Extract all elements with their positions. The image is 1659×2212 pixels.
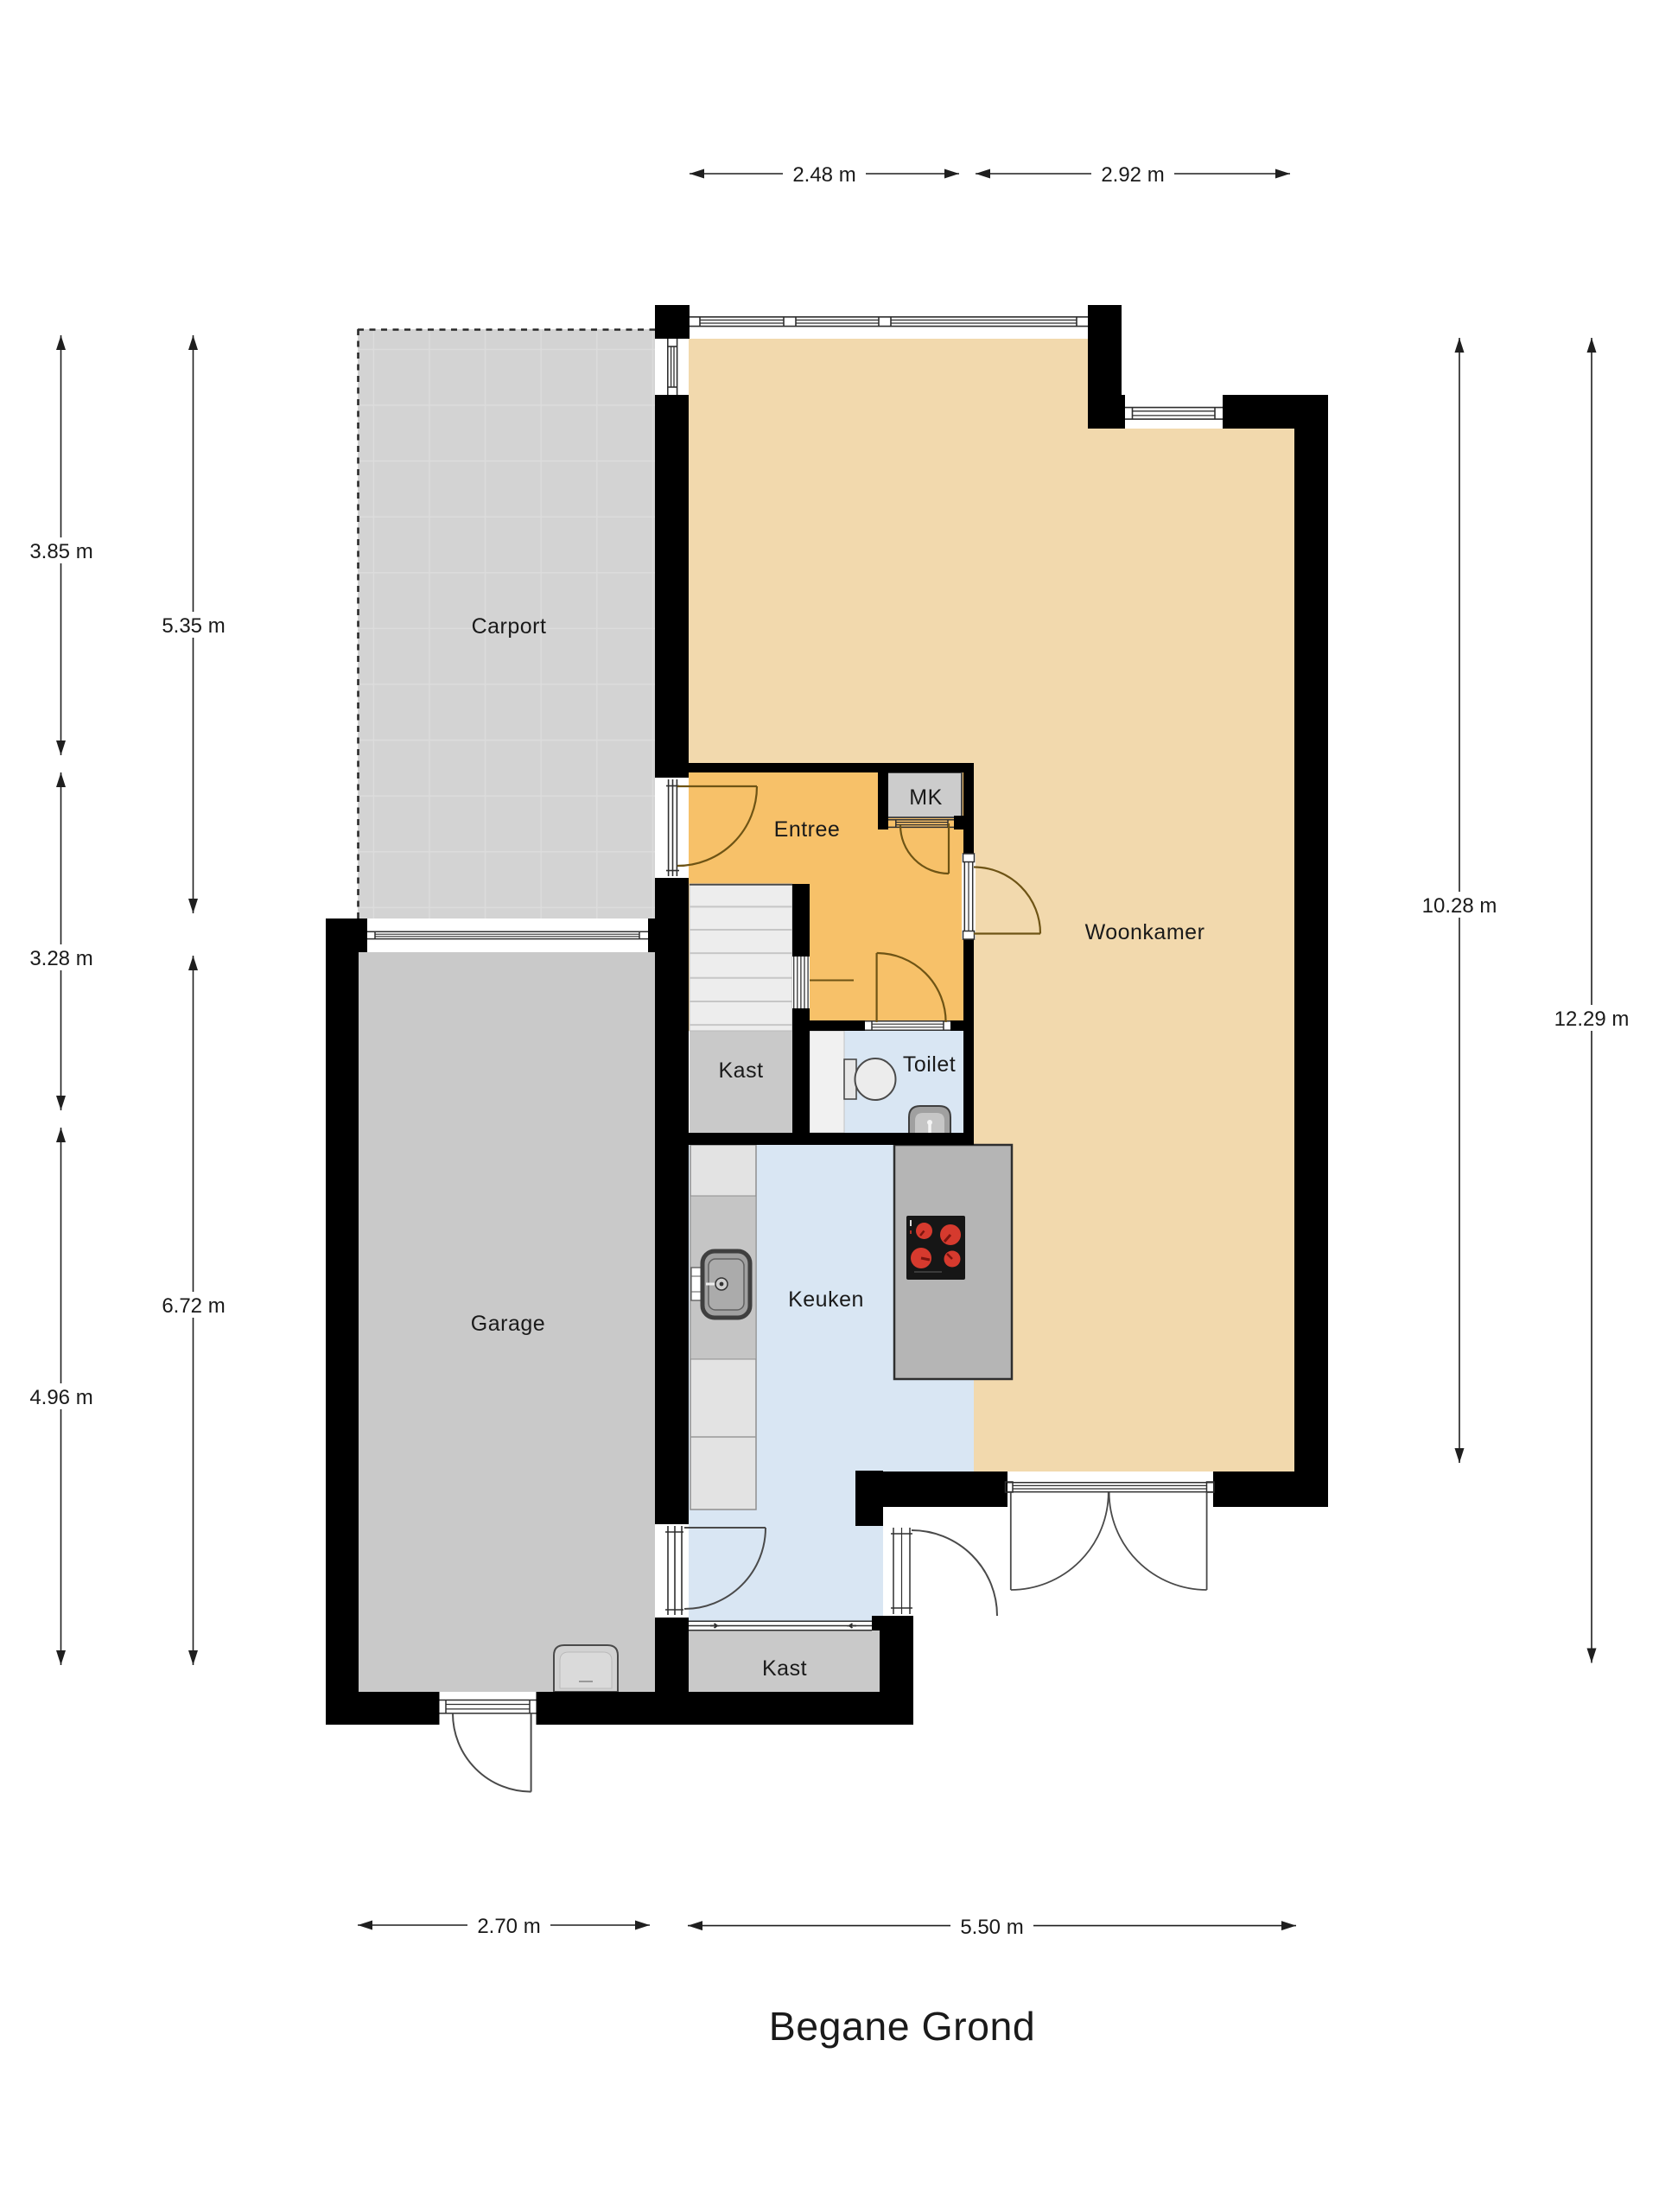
svg-text:5.50 m: 5.50 m: [960, 1916, 1023, 1939]
svg-text:Toilet: Toilet: [903, 1052, 956, 1077]
svg-text:Begane Grond: Begane Grond: [769, 2004, 1035, 2049]
svg-text:Carport: Carport: [472, 614, 547, 639]
svg-text:Kast: Kast: [718, 1058, 763, 1083]
svg-text:2.92 m: 2.92 m: [1101, 163, 1164, 187]
svg-text:2.70 m: 2.70 m: [477, 1915, 540, 1938]
svg-text:10.28 m: 10.28 m: [1422, 894, 1497, 918]
svg-text:Keuken: Keuken: [788, 1287, 864, 1312]
svg-text:6.72 m: 6.72 m: [162, 1294, 225, 1318]
svg-text:Entree: Entree: [774, 817, 841, 842]
svg-text:2.48 m: 2.48 m: [792, 163, 855, 187]
svg-text:3.28 m: 3.28 m: [29, 947, 92, 970]
svg-text:Woonkamer: Woonkamer: [1085, 920, 1205, 944]
svg-text:Kast: Kast: [762, 1656, 807, 1681]
svg-text:3.85 m: 3.85 m: [29, 540, 92, 563]
svg-text:12.29 m: 12.29 m: [1554, 1007, 1630, 1031]
svg-text:5.35 m: 5.35 m: [162, 614, 225, 638]
svg-text:Garage: Garage: [471, 1312, 545, 1336]
svg-text:MK: MK: [909, 785, 943, 810]
svg-text:4.96 m: 4.96 m: [29, 1386, 92, 1409]
